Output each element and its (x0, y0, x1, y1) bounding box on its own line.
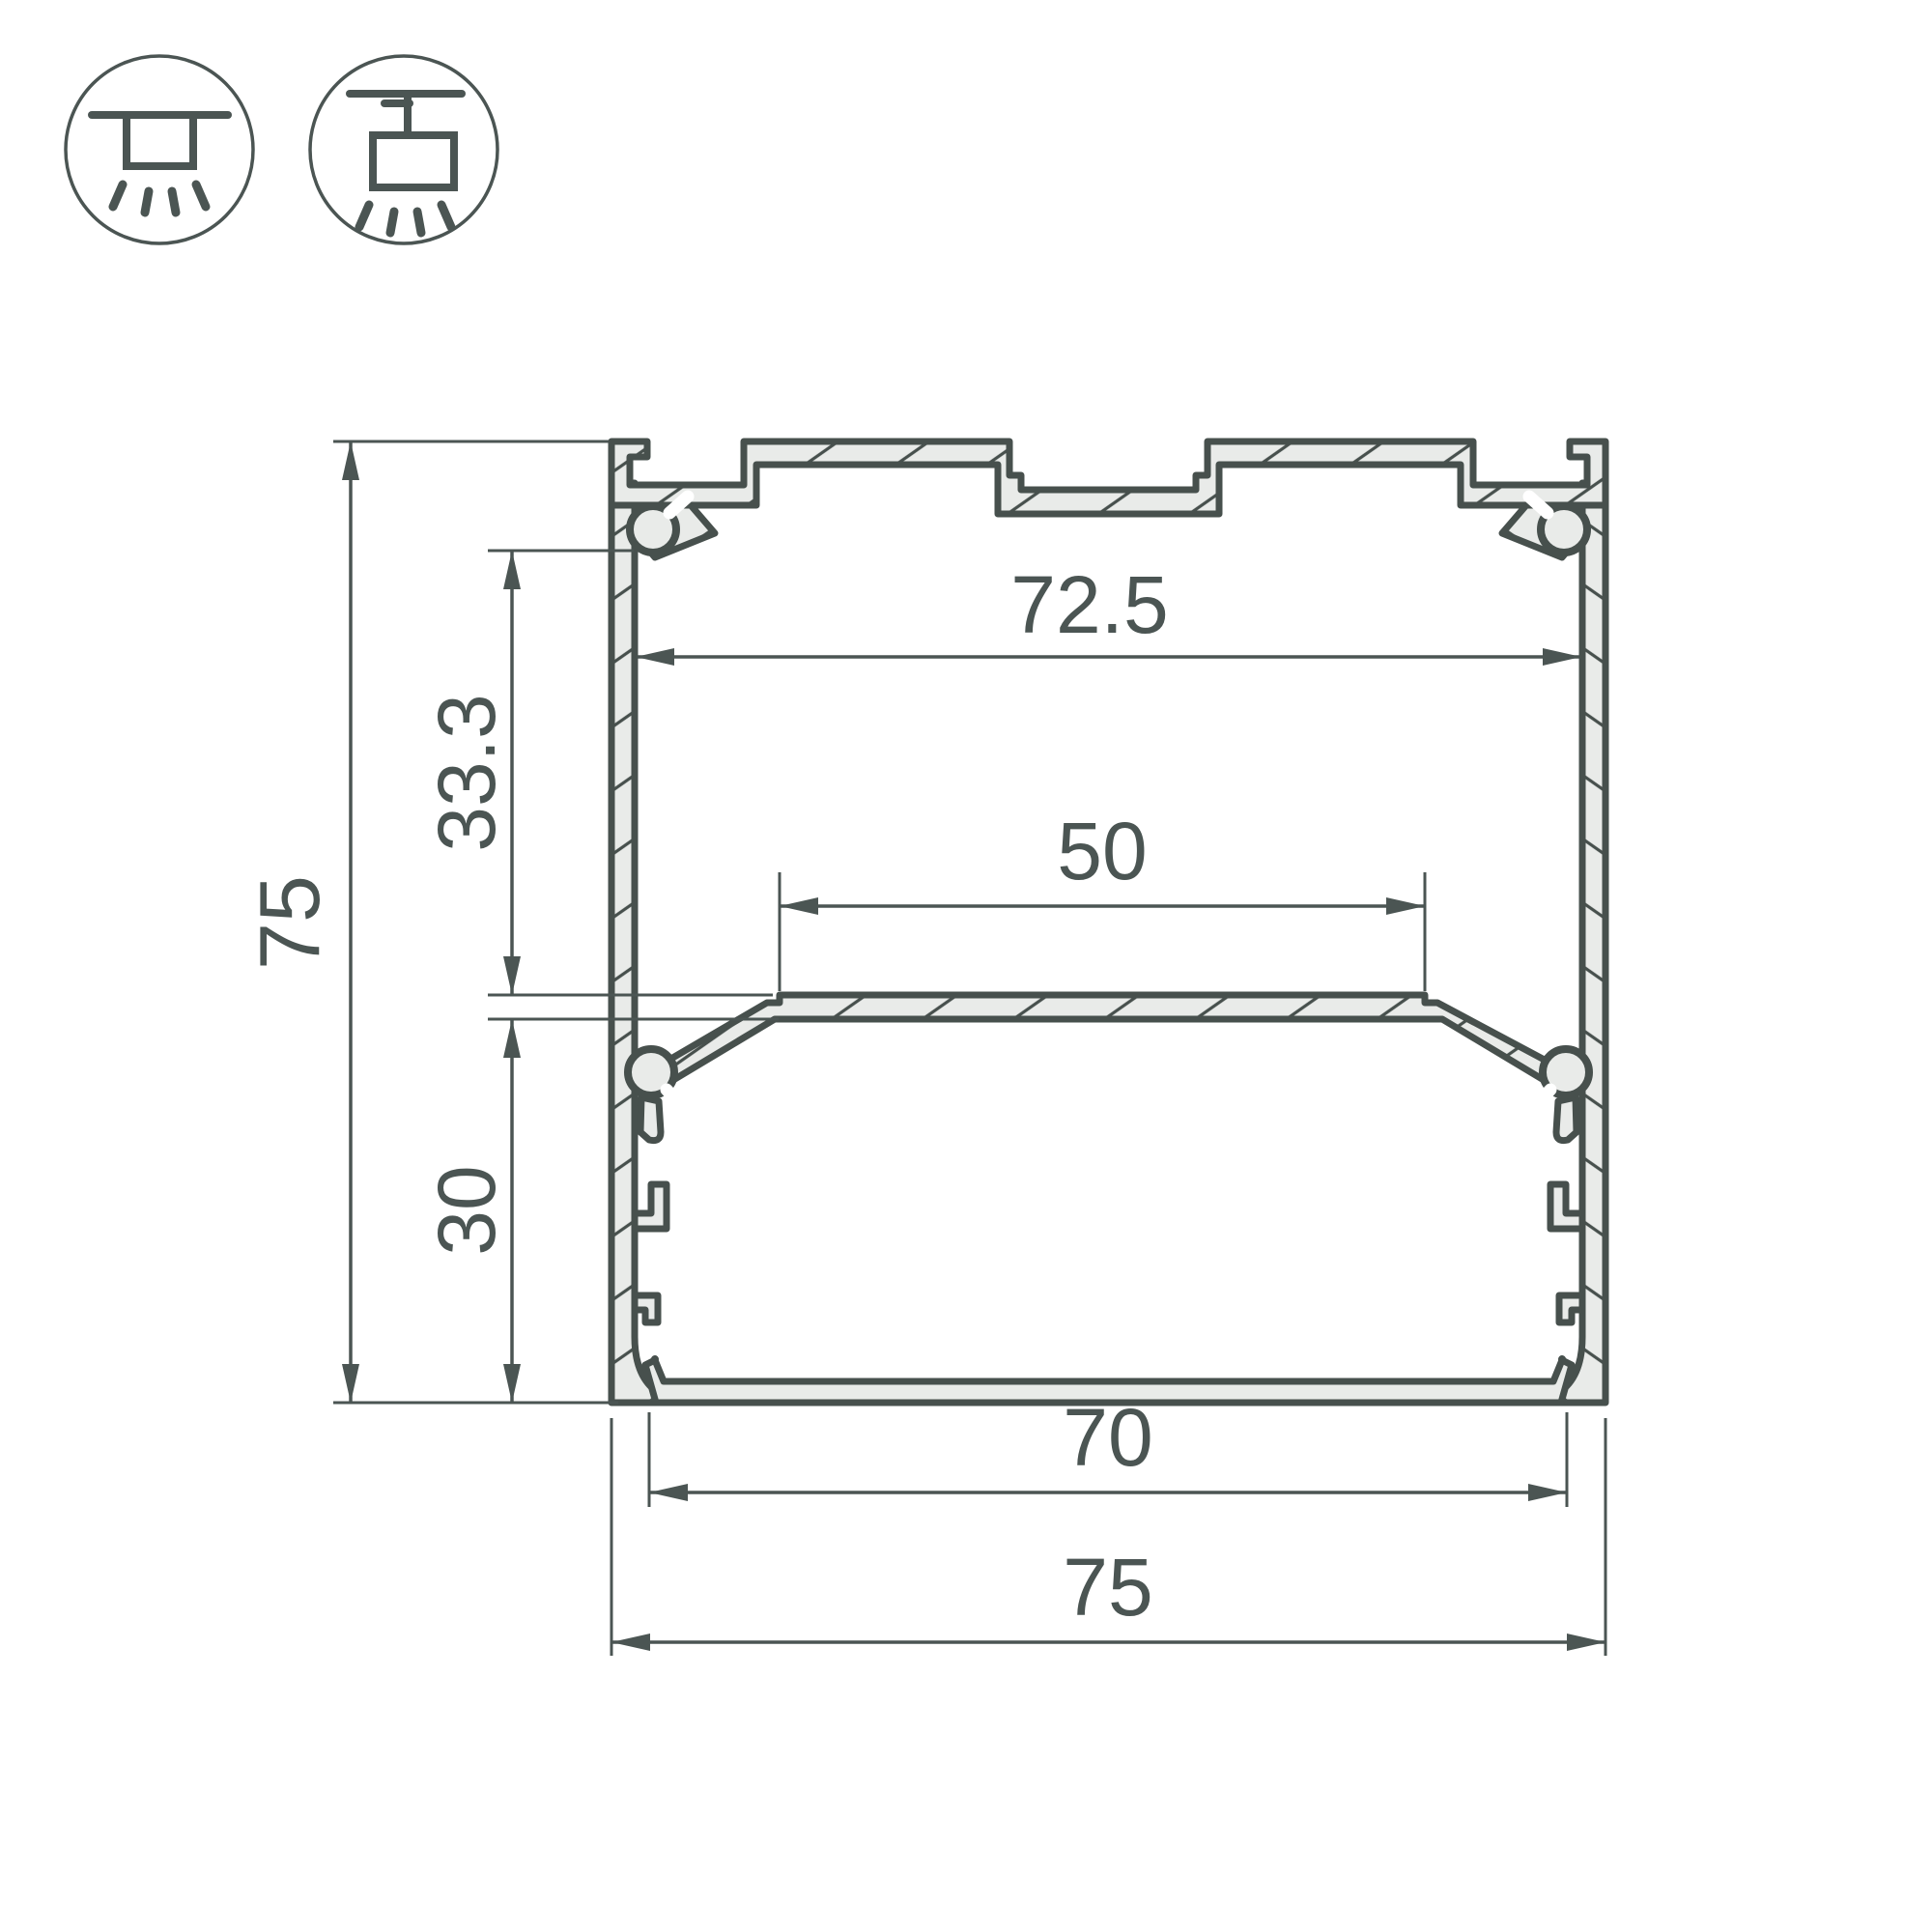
left-wall (611, 483, 690, 1403)
dimension-inner-top-width: 72.5 (636, 559, 1581, 666)
label-overall-width: 75 (1063, 1542, 1152, 1633)
led-shelf (635, 995, 1582, 1103)
top-mounting-face (611, 441, 1605, 514)
dimension-overall-height: 75 (241, 441, 359, 1403)
label-top-to-shelf: 33.3 (421, 694, 512, 852)
dimension-inner-bottom-width: 70 (649, 1392, 1567, 1501)
label-overall-height: 75 (241, 875, 337, 970)
dimension-top-to-shelf: 33.3 (421, 551, 521, 995)
mount-icons (66, 56, 497, 243)
dimensions: 72.5 50 33.3 30 75 (241, 441, 1605, 1656)
profile-technical-drawing: 72.5 50 33.3 30 75 (0, 0, 1932, 1932)
label-shelf-to-bottom: 30 (421, 1165, 512, 1255)
surface-mount-icon (66, 56, 253, 243)
dimension-overall-width: 75 (611, 1542, 1605, 1651)
label-inner-top-width: 72.5 (1010, 559, 1169, 650)
label-inner-bottom-width: 70 (1063, 1392, 1152, 1483)
dimension-shelf-to-bottom: 30 (421, 1019, 521, 1403)
dimension-led-shelf-width: 50 (780, 806, 1425, 915)
label-led-shelf-width: 50 (1057, 806, 1147, 896)
drawing-canvas: 72.5 50 33.3 30 75 (0, 0, 1932, 1932)
right-wall (1527, 483, 1605, 1403)
pendant-mount-icon (310, 56, 497, 243)
